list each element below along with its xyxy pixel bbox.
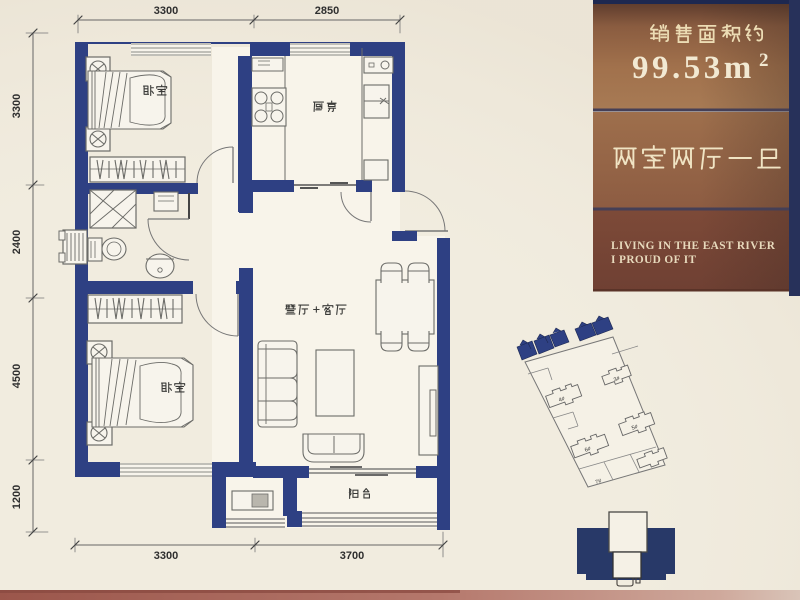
svg-text:2: 2 [759, 50, 769, 71]
svg-text:3700: 3700 [340, 550, 364, 562]
svg-text:3300: 3300 [154, 5, 178, 17]
svg-text:99.53m: 99.53m [632, 50, 755, 86]
svg-text:4500: 4500 [11, 364, 23, 388]
svg-text:3300: 3300 [11, 94, 23, 118]
svg-text:1200: 1200 [11, 485, 23, 509]
svg-text:3300: 3300 [154, 550, 178, 562]
svg-text:2400: 2400 [11, 230, 23, 254]
svg-text:2850: 2850 [315, 5, 339, 17]
svg-text:I PROUD OF IT: I PROUD OF IT [611, 254, 696, 266]
svg-text:LIVING IN THE EAST RIVER: LIVING IN THE EAST RIVER [611, 240, 776, 252]
